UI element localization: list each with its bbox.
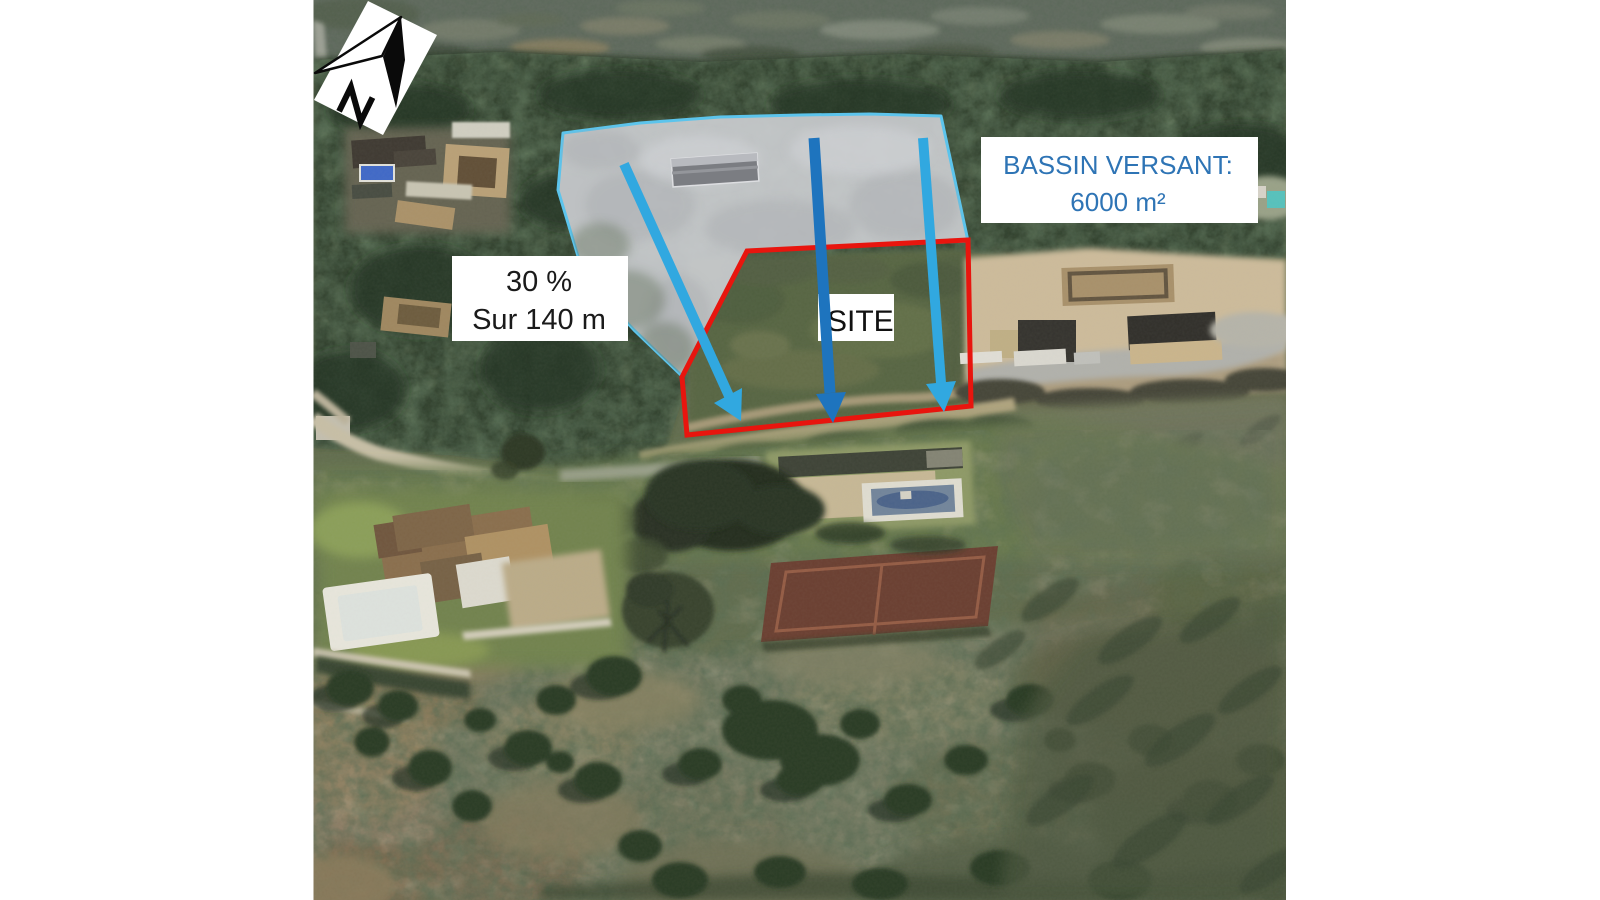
svg-text:30 %: 30 % xyxy=(506,266,572,298)
svg-text:SITE: SITE xyxy=(827,305,894,338)
svg-text:6000 m²: 6000 m² xyxy=(1070,187,1166,217)
svg-text:Sur 140 m: Sur 140 m xyxy=(472,304,606,336)
svg-text:BASSIN VERSANT:: BASSIN VERSANT: xyxy=(1003,150,1233,180)
